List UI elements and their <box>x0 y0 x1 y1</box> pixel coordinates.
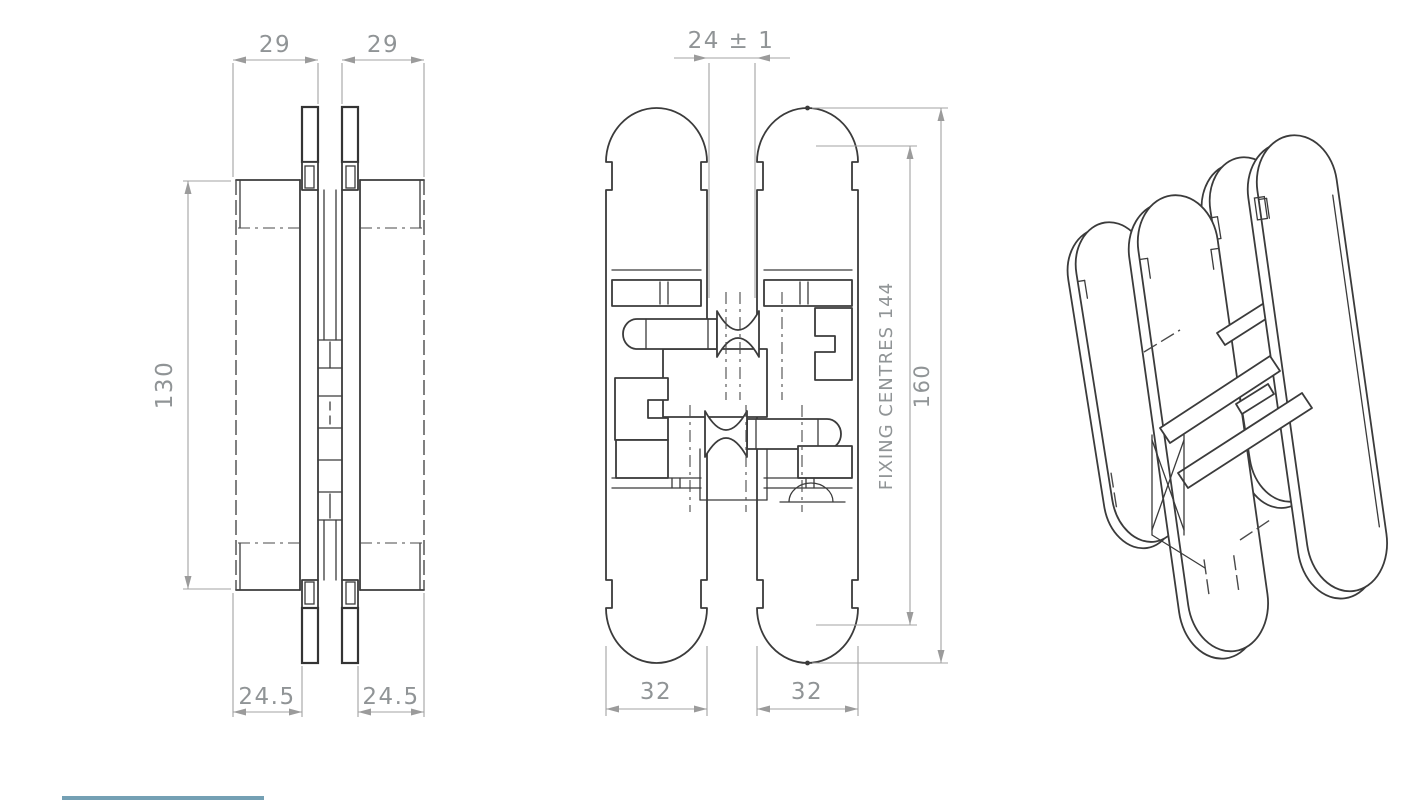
iso-view <box>1060 130 1394 664</box>
technical-drawing-page: 29 29 130 24.5 24.5 <box>0 0 1426 800</box>
dim-front-gap: 24 ± 1 <box>688 28 775 54</box>
side-view-plates <box>236 180 424 590</box>
technical-drawing-canvas: 29 29 130 24.5 24.5 <box>0 0 1426 800</box>
dim-side-width-top-right: 29 <box>367 32 399 58</box>
dim-side-width-bottom-right: 24.5 <box>362 684 419 710</box>
front-right-capsule <box>757 108 858 663</box>
side-view: 29 29 130 24.5 24.5 <box>152 32 424 717</box>
front-lower-arm <box>747 419 841 449</box>
front-upper-arm <box>623 319 717 349</box>
dim-side-width-bottom-left: 24.5 <box>238 684 295 710</box>
dim-front-width-left: 32 <box>640 679 672 705</box>
dim-front-width-right: 32 <box>791 679 823 705</box>
side-view-dimension-labels: 29 29 130 24.5 24.5 <box>152 32 420 710</box>
dim-side-height: 130 <box>152 361 178 409</box>
dim-side-width-top-left: 29 <box>259 32 291 58</box>
dim-front-overall-height: 160 <box>910 364 934 409</box>
side-view-top-tabs <box>302 107 358 190</box>
cropped-thumbnail-top-border[interactable] <box>62 796 264 800</box>
side-view-spine <box>318 190 342 580</box>
front-view: 24 ± 1 FIXING CENTRES 144 160 32 32 <box>606 28 948 716</box>
dim-front-fixing-centres: FIXING CENTRES 144 <box>876 282 897 490</box>
side-view-bottom-tabs <box>302 580 358 663</box>
